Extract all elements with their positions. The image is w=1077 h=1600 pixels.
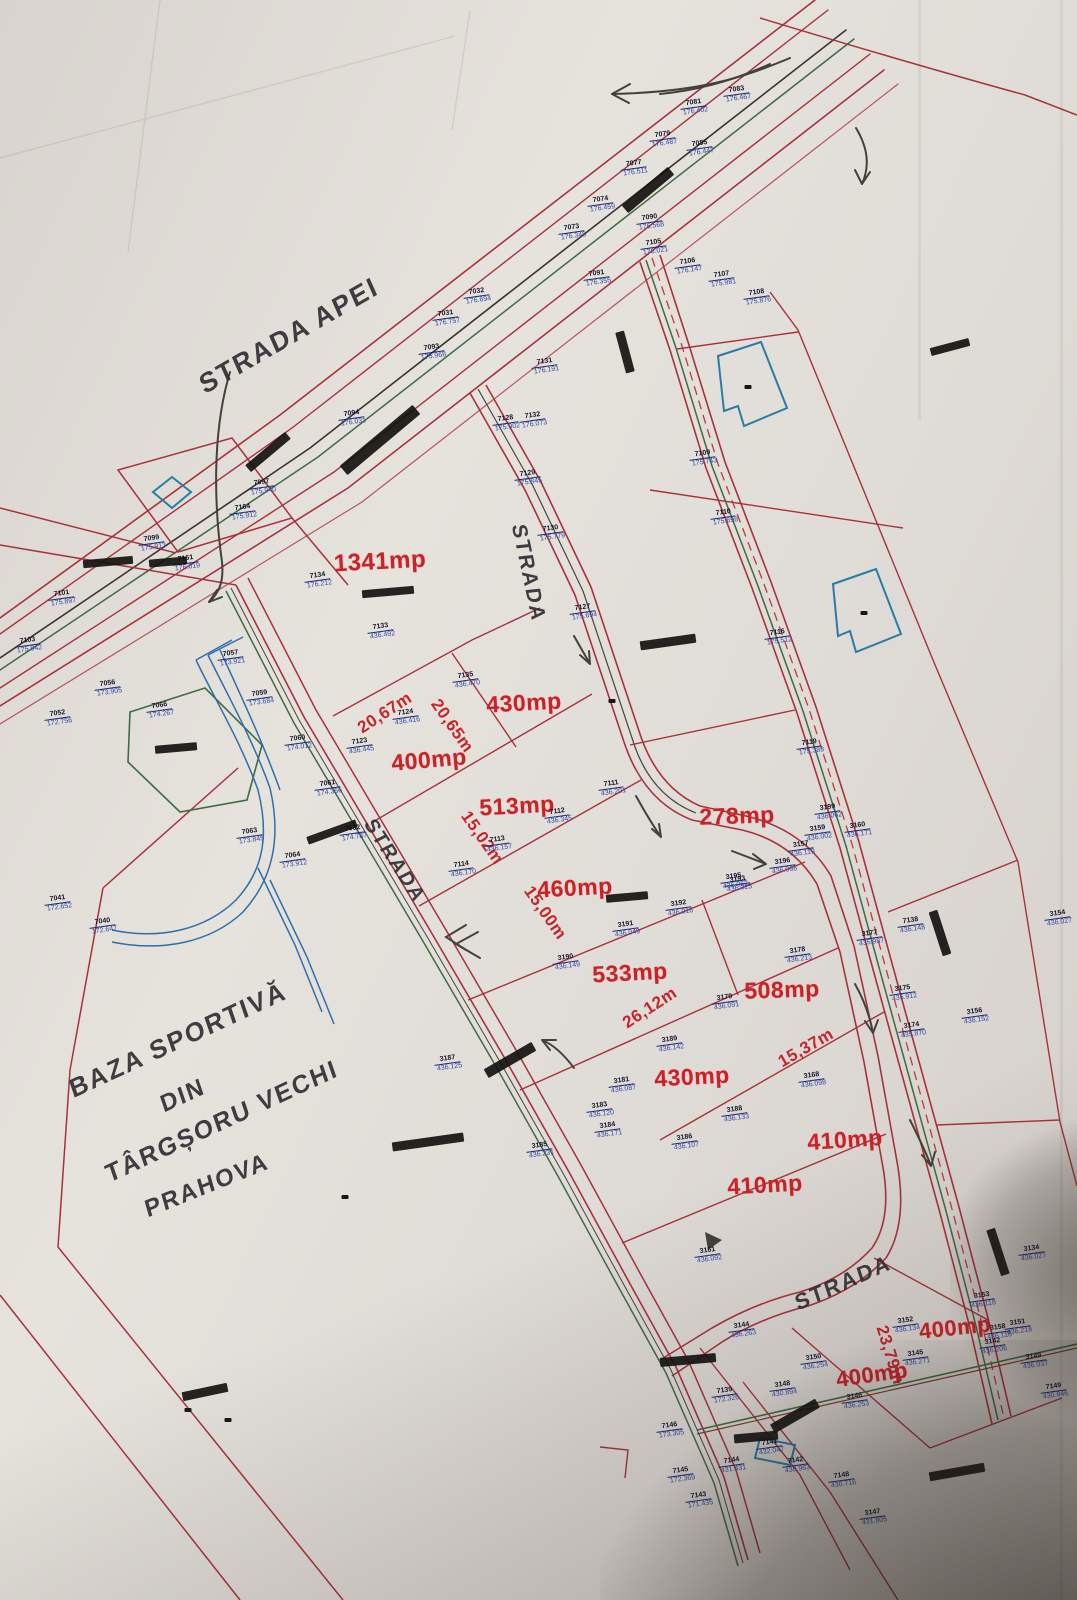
map-mark bbox=[185, 1408, 192, 1412]
main-road bbox=[0, 0, 898, 724]
map-mark bbox=[861, 611, 868, 615]
building-outline bbox=[718, 342, 787, 426]
map-mark bbox=[745, 385, 752, 389]
plot-area-label: 410mp bbox=[727, 1170, 804, 1201]
strada-apei-arrow bbox=[209, 372, 230, 602]
faint-pencil-lines bbox=[0, 0, 470, 252]
cadastral-map-sheet: STRADA APEIBAZA SPORTIVĂDINTÂRGȘORU VECH… bbox=[0, 0, 1077, 1600]
map-mark bbox=[342, 1195, 349, 1199]
channel-lines bbox=[112, 637, 334, 1024]
plot-area-label: 410mp bbox=[806, 1124, 883, 1156]
west-boundaries bbox=[0, 438, 348, 1600]
plot-area-label: 460mp bbox=[537, 873, 614, 904]
plot-area-label: 430mp bbox=[654, 1062, 731, 1093]
loop-street bbox=[470, 385, 901, 1376]
plot-area-label: 533mp bbox=[592, 958, 669, 989]
paper-crease bbox=[918, 0, 921, 420]
plot-area-label: 1341mp bbox=[333, 546, 427, 579]
paper-crease bbox=[1060, 0, 1063, 1600]
map-mark bbox=[609, 699, 616, 703]
plot-area-label: 278mp bbox=[699, 801, 775, 831]
map-mark bbox=[225, 1418, 232, 1422]
plot-area-label: 430mp bbox=[486, 688, 563, 719]
plot-area-label: 508mp bbox=[744, 975, 820, 1005]
